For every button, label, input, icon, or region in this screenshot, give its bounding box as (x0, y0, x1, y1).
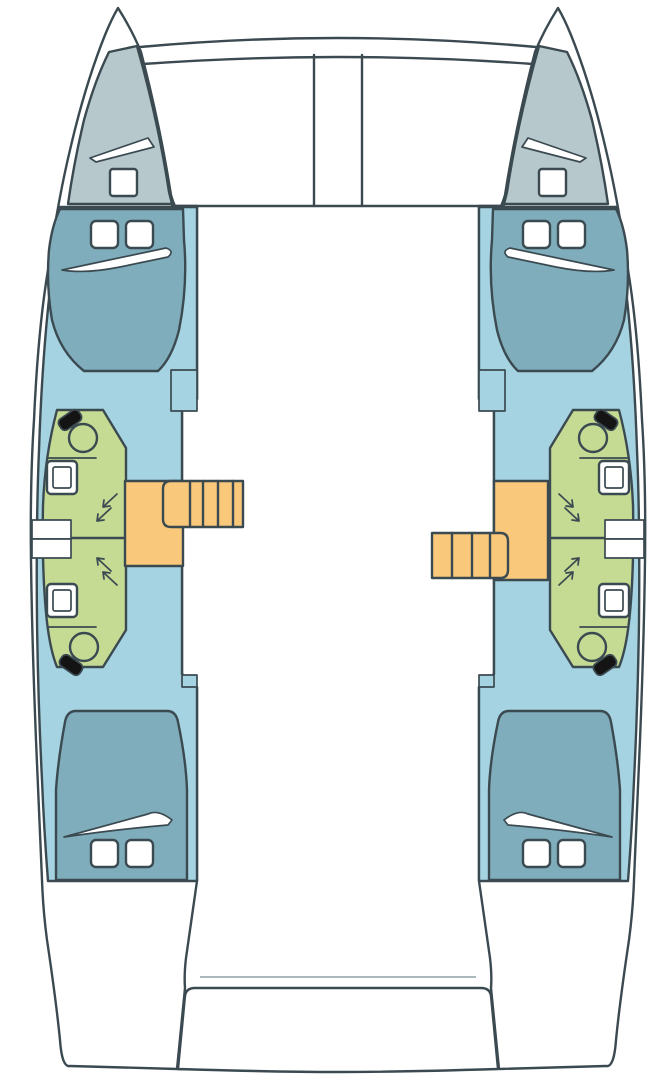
pillow (126, 221, 153, 248)
aft-cockpit (178, 977, 498, 1072)
starboard-aft-berth (489, 711, 620, 880)
pillow (91, 840, 118, 867)
bathroom-door (32, 520, 71, 558)
pillow (558, 221, 585, 248)
port-companionway-stairs (125, 481, 243, 566)
sink-icon (47, 584, 77, 617)
starboard-forward-berth (491, 209, 628, 371)
starboard-companionway-notch-fwd (479, 370, 505, 411)
port-forward-berth (48, 209, 185, 371)
starboard-companionway-stairs (432, 481, 548, 580)
port-forepeak-hatch (110, 169, 137, 196)
bed (56, 711, 187, 880)
floorplan-svg (0, 0, 652, 1080)
catamaran-floorplan-diagram (0, 0, 652, 1080)
starboard-forepeak-hatch (539, 169, 566, 196)
sink-icon (599, 584, 629, 617)
forward-crossbeam-line (140, 38, 536, 47)
sink-icon (47, 461, 77, 494)
pillow (523, 221, 550, 248)
pillow (523, 840, 550, 867)
forward-crossbeam-line (143, 57, 533, 64)
steps (432, 533, 508, 578)
pillow (126, 840, 153, 867)
bed (489, 711, 620, 880)
foredeck-trampoline (140, 38, 536, 206)
starboard-companionway-notch-aft (479, 675, 494, 687)
port-companionway-notch-aft (182, 675, 197, 687)
port-companionway-notch-fwd (171, 370, 197, 411)
pillow (558, 840, 585, 867)
sink-icon (599, 461, 629, 494)
cockpit-sole (178, 988, 498, 1072)
port-aft-berth (56, 711, 187, 880)
pillow (91, 221, 118, 248)
bathroom-door (605, 520, 644, 558)
